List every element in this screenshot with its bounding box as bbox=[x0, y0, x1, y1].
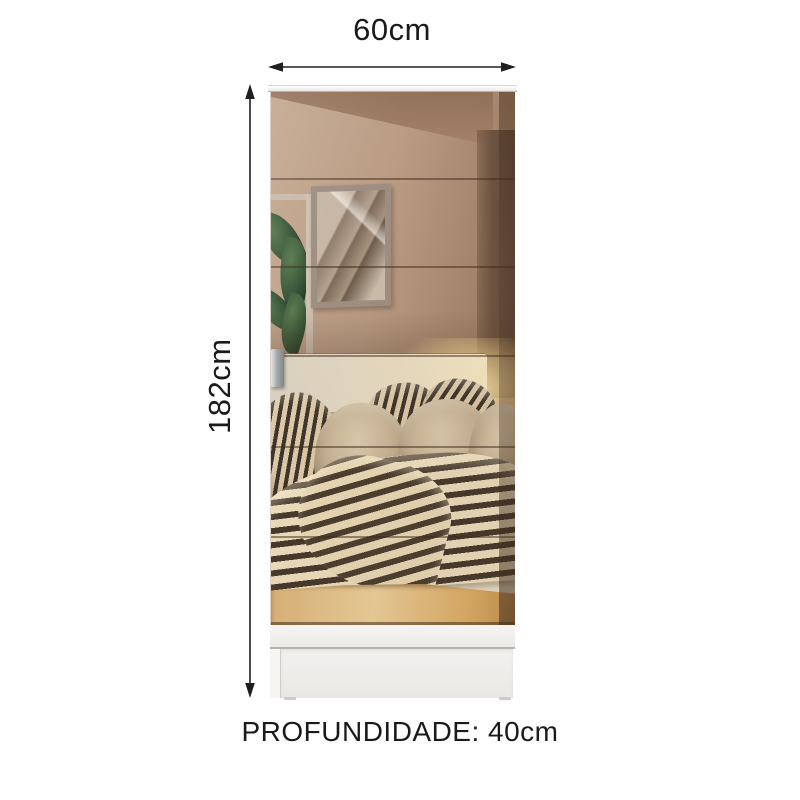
base-upper-panel bbox=[270, 625, 515, 649]
height-dimension-arrow-icon bbox=[241, 82, 259, 700]
mirror-door bbox=[270, 92, 515, 625]
product-dimension-diagram: 60cm 182cm bbox=[0, 0, 800, 800]
wardrobe-foot bbox=[499, 697, 511, 700]
door-handle bbox=[271, 349, 284, 387]
wardrobe bbox=[268, 85, 517, 698]
depth-dimension-label: PROFUNDIDADE: 40cm bbox=[150, 716, 650, 748]
width-dimension-arrow-icon bbox=[266, 58, 518, 76]
width-dimension-label: 60cm bbox=[270, 12, 514, 48]
base-lower-panel bbox=[281, 649, 513, 698]
mirror-sheen bbox=[271, 92, 515, 625]
height-dimension-label: 182cm bbox=[201, 318, 239, 454]
wardrobe-top-panel bbox=[268, 85, 517, 92]
wardrobe-foot bbox=[284, 697, 296, 700]
wardrobe-base bbox=[270, 625, 515, 698]
base-side-edge bbox=[270, 649, 281, 698]
